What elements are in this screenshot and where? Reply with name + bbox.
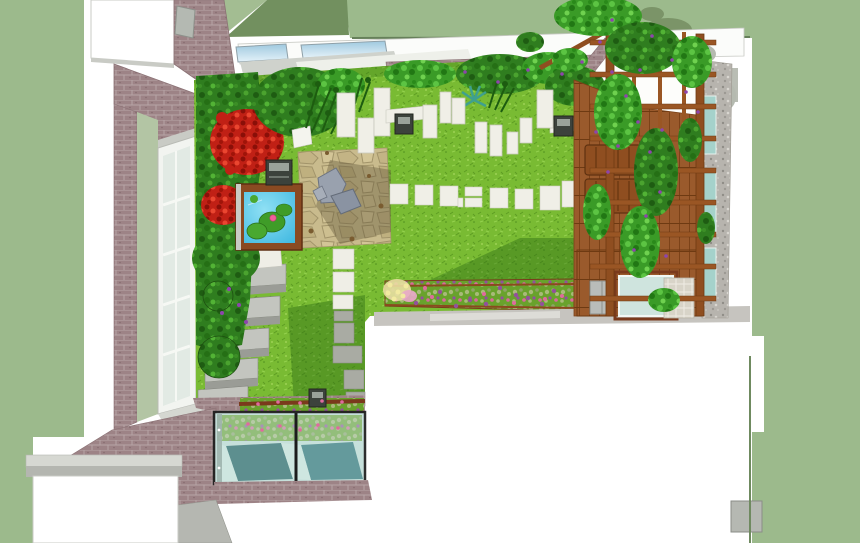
path-slab-1 xyxy=(333,249,354,269)
flower-dot xyxy=(616,144,620,148)
vine-cascade-6 xyxy=(672,36,712,88)
flower-dot xyxy=(580,60,584,64)
flower-dot xyxy=(543,297,547,301)
pad-tile-4c xyxy=(458,198,463,207)
flower-dot xyxy=(624,94,628,98)
flower-dot xyxy=(664,254,668,258)
pad-tile-4b xyxy=(465,198,482,207)
scene-root xyxy=(0,0,860,543)
flower-dot xyxy=(438,290,442,294)
flower-dot xyxy=(316,423,320,427)
flower-dot xyxy=(220,311,224,315)
vine-cascade-11 xyxy=(648,288,680,312)
pad-tile-3 xyxy=(440,186,458,206)
flower-dot xyxy=(468,298,472,302)
topiary-ball-2 xyxy=(198,336,240,378)
pad-tile-7 xyxy=(540,186,560,210)
vine-cascade-3 xyxy=(594,74,642,150)
flower-dot xyxy=(684,90,688,94)
flower-dot xyxy=(498,286,502,290)
screen-slab-g xyxy=(475,122,487,153)
wall-panel xyxy=(91,0,174,64)
flower-dot xyxy=(514,293,518,297)
glass-through-bed xyxy=(217,415,362,441)
glass-hinge-2 xyxy=(218,467,221,470)
patio-pebble-1 xyxy=(309,229,314,234)
vine-cascade-8 xyxy=(583,184,611,240)
screen-slab-h xyxy=(490,125,502,156)
flower-dot xyxy=(388,283,393,288)
flower-dot xyxy=(298,401,302,405)
ledge-cap-mid xyxy=(26,466,182,477)
flower-dot xyxy=(560,294,564,298)
flower-dot xyxy=(660,128,664,132)
glass-teal-2 xyxy=(301,442,363,480)
pillar-slab xyxy=(292,126,312,148)
flower-dot xyxy=(256,402,260,406)
screen-slab-f xyxy=(452,98,465,124)
flower-dot xyxy=(552,289,556,293)
flower-dot xyxy=(414,301,418,305)
screen-slab-j xyxy=(520,118,532,143)
path-slab-7 xyxy=(344,370,364,389)
vine-cascade-10 xyxy=(552,48,588,72)
flower-dot xyxy=(496,80,500,84)
flower-dot xyxy=(526,68,530,72)
walk-brick-below xyxy=(214,480,372,504)
glass-hinge-1 xyxy=(218,429,221,432)
pad-tile-6 xyxy=(515,189,533,209)
screen-slab-d xyxy=(423,105,437,138)
flower-dot xyxy=(598,40,602,44)
path-slab-5 xyxy=(334,323,354,343)
flower-dot xyxy=(610,18,614,22)
courtyard-garden-scene xyxy=(0,0,860,543)
lantern-2-top xyxy=(557,119,570,126)
vine-cascade-7 xyxy=(678,118,702,162)
flower-dot xyxy=(560,72,564,76)
flower-dot xyxy=(632,248,636,252)
vine-gable xyxy=(516,32,544,52)
flower-dot xyxy=(610,70,614,74)
vine-strip-1 xyxy=(384,60,456,88)
flower-dot xyxy=(401,294,406,299)
flower-dot xyxy=(670,58,674,62)
topiary-ball-1 xyxy=(203,281,233,311)
screen-slab-b xyxy=(358,118,374,153)
screen-slab-a xyxy=(337,93,355,137)
flower-dot xyxy=(454,304,458,308)
screen-slab-k xyxy=(537,90,553,128)
red-shrub-tuft-1 xyxy=(216,112,228,124)
patio-pebble-5 xyxy=(367,174,371,178)
flower-dot xyxy=(606,170,610,174)
flower-dot xyxy=(638,68,642,72)
flower-dot xyxy=(644,214,648,218)
flower-dot xyxy=(227,287,231,291)
flower-dot xyxy=(276,400,280,404)
flower-dot xyxy=(463,70,467,74)
flower-dot xyxy=(650,34,654,38)
flower-dot xyxy=(404,284,409,289)
vine-cascade-4 xyxy=(634,128,678,216)
flower-dot xyxy=(540,302,544,306)
glass-post-left xyxy=(217,414,222,482)
pad-tile-5 xyxy=(490,188,508,208)
flower-dot xyxy=(278,424,282,428)
patio-pebble-3 xyxy=(379,204,384,209)
white-box xyxy=(33,476,178,543)
flower-dot xyxy=(423,286,427,290)
step-shadow-right xyxy=(731,501,762,532)
vine-cascade-2 xyxy=(605,22,681,74)
lantern-1-top xyxy=(398,117,410,124)
lantern-4-top xyxy=(312,392,323,398)
pad-tile-4a xyxy=(465,187,482,196)
bamboo-leaf-2 xyxy=(333,87,339,93)
flower-dot xyxy=(512,301,516,305)
lily-pad-3 xyxy=(276,204,292,216)
patio-pebble-2 xyxy=(350,237,355,242)
lily-pad-2 xyxy=(247,223,267,239)
flower-dot xyxy=(636,120,640,124)
path-slab-4 xyxy=(334,311,353,321)
flower-dot xyxy=(246,422,250,426)
flower-dot xyxy=(320,399,324,403)
pond-leaf xyxy=(250,195,258,203)
pad-tile-1 xyxy=(390,184,408,204)
vine-cascade-9 xyxy=(697,212,715,244)
path-slab-3 xyxy=(333,295,353,309)
red-shrub-tuft-3 xyxy=(225,165,235,175)
bamboo-leaf-4 xyxy=(365,77,371,83)
flower-dot xyxy=(336,426,340,430)
screen-slab-i xyxy=(507,132,518,154)
green-wall-strip xyxy=(137,112,158,422)
flower-dot xyxy=(696,110,700,114)
bamboo-leaf-1 xyxy=(315,81,321,87)
garden-3d-render xyxy=(0,0,860,543)
ledge-cap-light xyxy=(26,455,182,467)
flower-dot xyxy=(482,292,486,296)
flower-dot xyxy=(658,190,662,194)
flower-dot xyxy=(260,428,264,432)
flower-dot xyxy=(392,297,397,302)
flower-dot xyxy=(648,150,652,154)
flower-dot xyxy=(386,291,391,296)
pond-frame-highlight xyxy=(236,184,241,250)
flower-dot xyxy=(340,400,344,404)
flower-dot xyxy=(484,302,488,306)
flower-dot xyxy=(298,428,302,432)
flower-dot xyxy=(526,296,530,300)
lily-flower xyxy=(270,215,276,221)
vine-cascade-5 xyxy=(620,206,660,278)
flower-dot xyxy=(396,290,401,295)
flower-dot xyxy=(430,295,434,299)
path-slab-2 xyxy=(333,272,354,292)
brick-pier xyxy=(114,104,137,432)
flower-dot xyxy=(244,320,248,324)
bamboo-leaf-5 xyxy=(502,81,508,87)
flower-dot xyxy=(237,303,241,307)
tower-skylight xyxy=(175,6,195,38)
pad-tile-2 xyxy=(415,185,433,205)
screen-slab-e xyxy=(440,92,451,123)
flower-dot xyxy=(594,130,598,134)
path-slab-6 xyxy=(333,346,362,363)
grill-top xyxy=(269,163,289,171)
patio-pebble-6 xyxy=(325,151,329,155)
